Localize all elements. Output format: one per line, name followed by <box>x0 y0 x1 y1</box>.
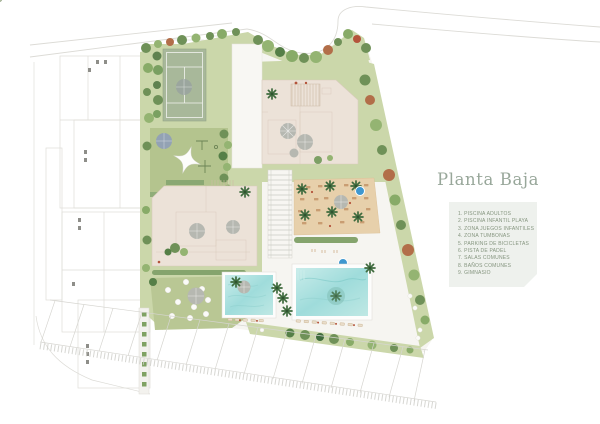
legend-item: 1. PISCINA ADULTOS <box>458 211 533 218</box>
legend-item: 9. GIMNASIO <box>458 270 533 277</box>
siteplan-page: Planta Baja 1. PISCINA ADULTOS 2. PISCIN… <box>0 0 600 424</box>
legend-item: 5. PARKING DE BICICLETAS <box>458 241 533 248</box>
pergola-walkway <box>268 170 292 258</box>
info-panel: Planta Baja 1. PISCINA ADULTOS 2. PISCIN… <box>437 170 587 189</box>
legend-item: 6. PISTA DE PADEL <box>458 248 533 255</box>
legend-item: 7. SALAS COMUNES <box>458 255 533 262</box>
adults-pool <box>292 263 375 320</box>
building-northeast <box>262 80 358 164</box>
page-title: Planta Baja <box>437 170 587 189</box>
sunbed-deck <box>294 178 380 235</box>
legend-list: 1. PISCINA ADULTOS 2. PISCINA INFANTIL P… <box>449 202 537 278</box>
legend-box: 1. PISCINA ADULTOS 2. PISCINA INFANTIL P… <box>449 202 537 287</box>
legend-item: 3. ZONA JUEGOS INFANTILES <box>458 226 533 233</box>
legend-item: 8. BAÑOS COMUNES <box>458 263 533 270</box>
building-southwest <box>152 180 257 266</box>
legend-item: 2. PISCINA INFANTIL PLAYA <box>458 218 533 225</box>
legend-item: 4. ZONA TUMBONAS <box>458 233 533 240</box>
